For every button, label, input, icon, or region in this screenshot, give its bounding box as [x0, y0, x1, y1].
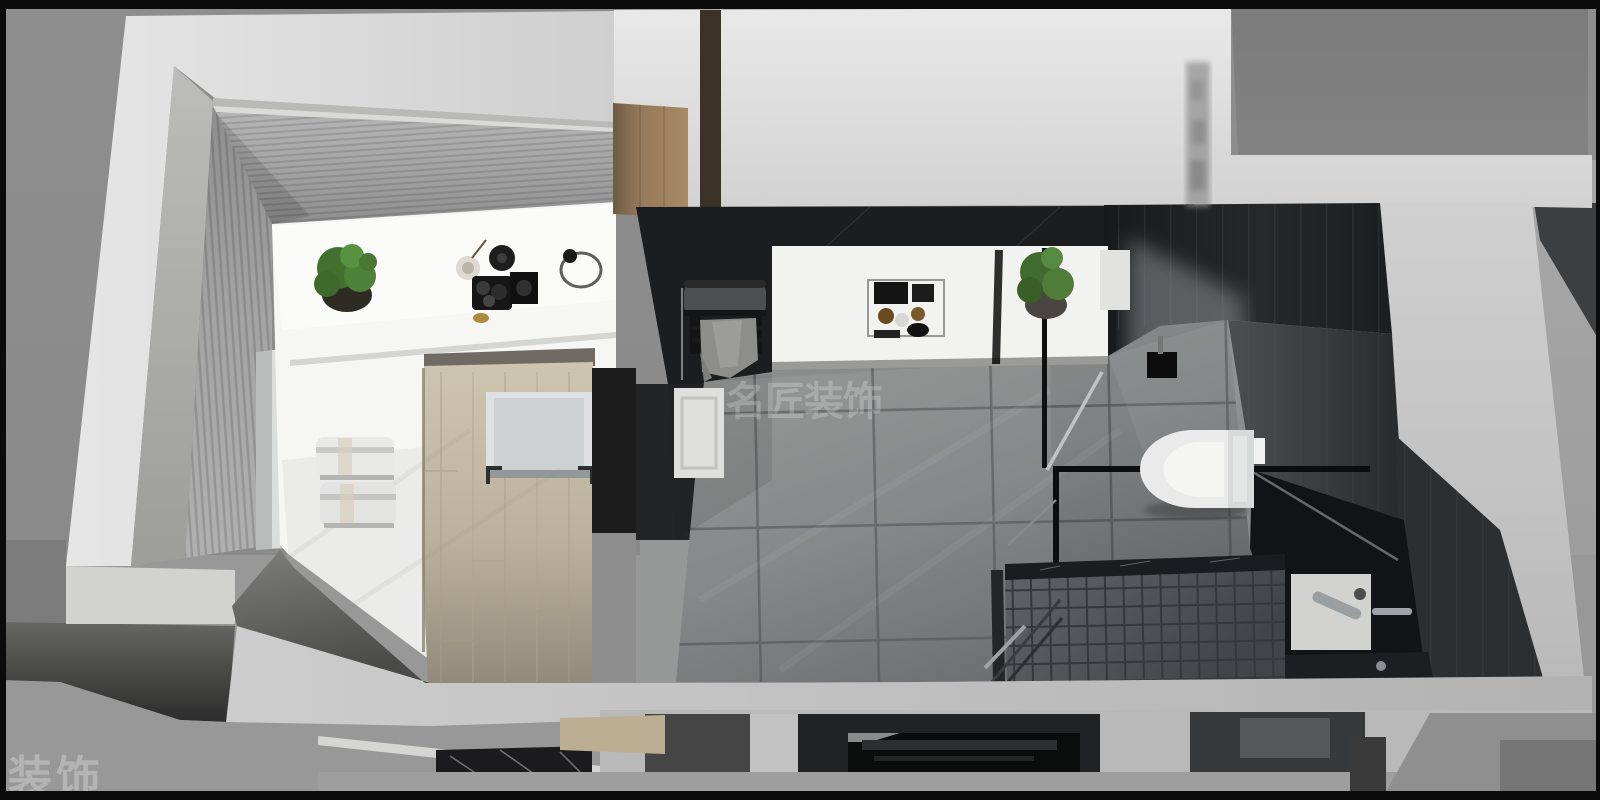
svg-text:名匠装饰: 名匠装饰: [726, 380, 882, 424]
